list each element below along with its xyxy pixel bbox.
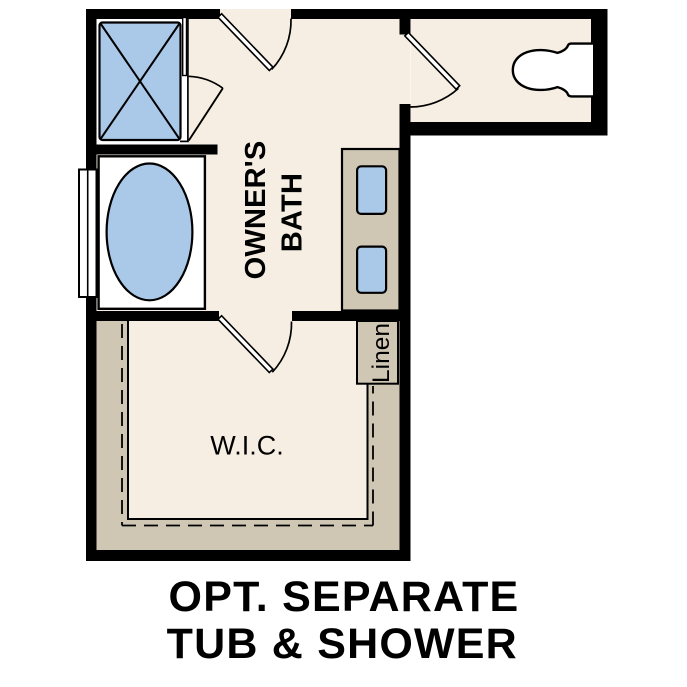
svg-text:TUB & SHOWER: TUB & SHOWER — [167, 620, 518, 668]
svg-text:W.I.C.: W.I.C. — [210, 430, 284, 460]
svg-text:Linen: Linen — [368, 323, 395, 383]
svg-text:OPT. SEPARATE: OPT. SEPARATE — [169, 573, 520, 621]
svg-text:OWNER'S: OWNER'S — [240, 141, 272, 280]
svg-text:BATH: BATH — [277, 173, 309, 252]
